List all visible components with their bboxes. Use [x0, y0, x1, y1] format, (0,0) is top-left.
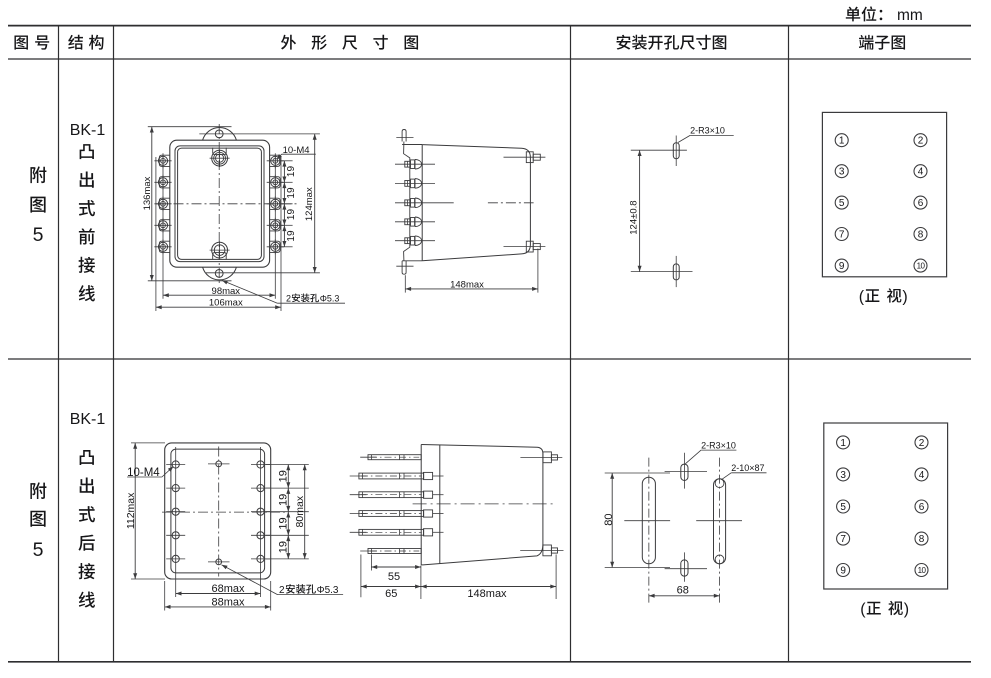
svg-text:2: 2	[286, 293, 291, 303]
svg-text:19: 19	[278, 517, 290, 529]
svg-text:65: 65	[385, 588, 397, 600]
svg-text:80: 80	[603, 513, 615, 525]
svg-text:136max: 136max	[142, 176, 153, 210]
svg-text:4: 4	[918, 167, 924, 178]
svg-text:68max: 68max	[211, 583, 245, 595]
svg-text:19: 19	[286, 187, 297, 199]
svg-text:3: 3	[839, 167, 845, 178]
svg-text:Φ5.3: Φ5.3	[317, 585, 339, 596]
svg-text:): )	[902, 288, 907, 305]
svg-text:BK-1: BK-1	[70, 411, 106, 428]
svg-text:3: 3	[840, 470, 846, 481]
svg-text:148max: 148max	[450, 279, 484, 290]
svg-text:68: 68	[677, 585, 689, 597]
svg-text:124max: 124max	[304, 187, 315, 221]
svg-text:88max: 88max	[211, 596, 245, 608]
svg-text:1: 1	[840, 438, 846, 449]
svg-text:19: 19	[278, 470, 290, 482]
svg-text:19: 19	[286, 209, 297, 221]
svg-text:2: 2	[918, 136, 924, 147]
svg-text:4: 4	[919, 470, 925, 481]
svg-text:5: 5	[840, 502, 846, 513]
svg-text:2-R3×10: 2-R3×10	[690, 126, 725, 136]
svg-text:): )	[904, 601, 909, 618]
svg-text:2-R3×10: 2-R3×10	[701, 440, 736, 450]
svg-text:9: 9	[839, 261, 845, 272]
svg-text:19: 19	[278, 541, 290, 553]
svg-text:112max: 112max	[125, 492, 137, 529]
svg-text:106max: 106max	[209, 297, 243, 308]
svg-text:124±0.8: 124±0.8	[628, 200, 639, 234]
svg-text:19: 19	[278, 494, 290, 506]
svg-text:mm: mm	[897, 7, 923, 24]
svg-text:19: 19	[286, 230, 297, 242]
svg-text:1: 1	[839, 136, 845, 147]
svg-text:7: 7	[840, 534, 846, 545]
svg-text:98max: 98max	[212, 286, 241, 297]
svg-text:10: 10	[917, 262, 926, 271]
svg-text:(: (	[860, 601, 866, 618]
svg-text:6: 6	[919, 502, 925, 513]
svg-text:2: 2	[919, 438, 925, 449]
svg-text:148max: 148max	[467, 588, 507, 600]
svg-text:55: 55	[388, 571, 400, 583]
svg-text:8: 8	[919, 534, 925, 545]
svg-text:(: (	[859, 288, 865, 305]
svg-text:80max: 80max	[294, 495, 306, 527]
svg-text:Φ5.3: Φ5.3	[320, 293, 340, 303]
svg-text:19: 19	[286, 166, 297, 178]
svg-text:5: 5	[33, 224, 44, 246]
svg-text:2: 2	[279, 585, 285, 596]
svg-text:9: 9	[840, 566, 846, 577]
svg-text:7: 7	[839, 230, 845, 241]
svg-text:10: 10	[918, 566, 927, 575]
svg-text:5: 5	[33, 539, 44, 561]
svg-text:BK-1: BK-1	[70, 122, 106, 139]
svg-text:10-M4: 10-M4	[127, 467, 160, 479]
svg-text:8: 8	[918, 230, 924, 241]
svg-text:5: 5	[839, 198, 845, 209]
svg-text:2-10×87: 2-10×87	[731, 463, 764, 473]
svg-text:6: 6	[918, 198, 924, 209]
